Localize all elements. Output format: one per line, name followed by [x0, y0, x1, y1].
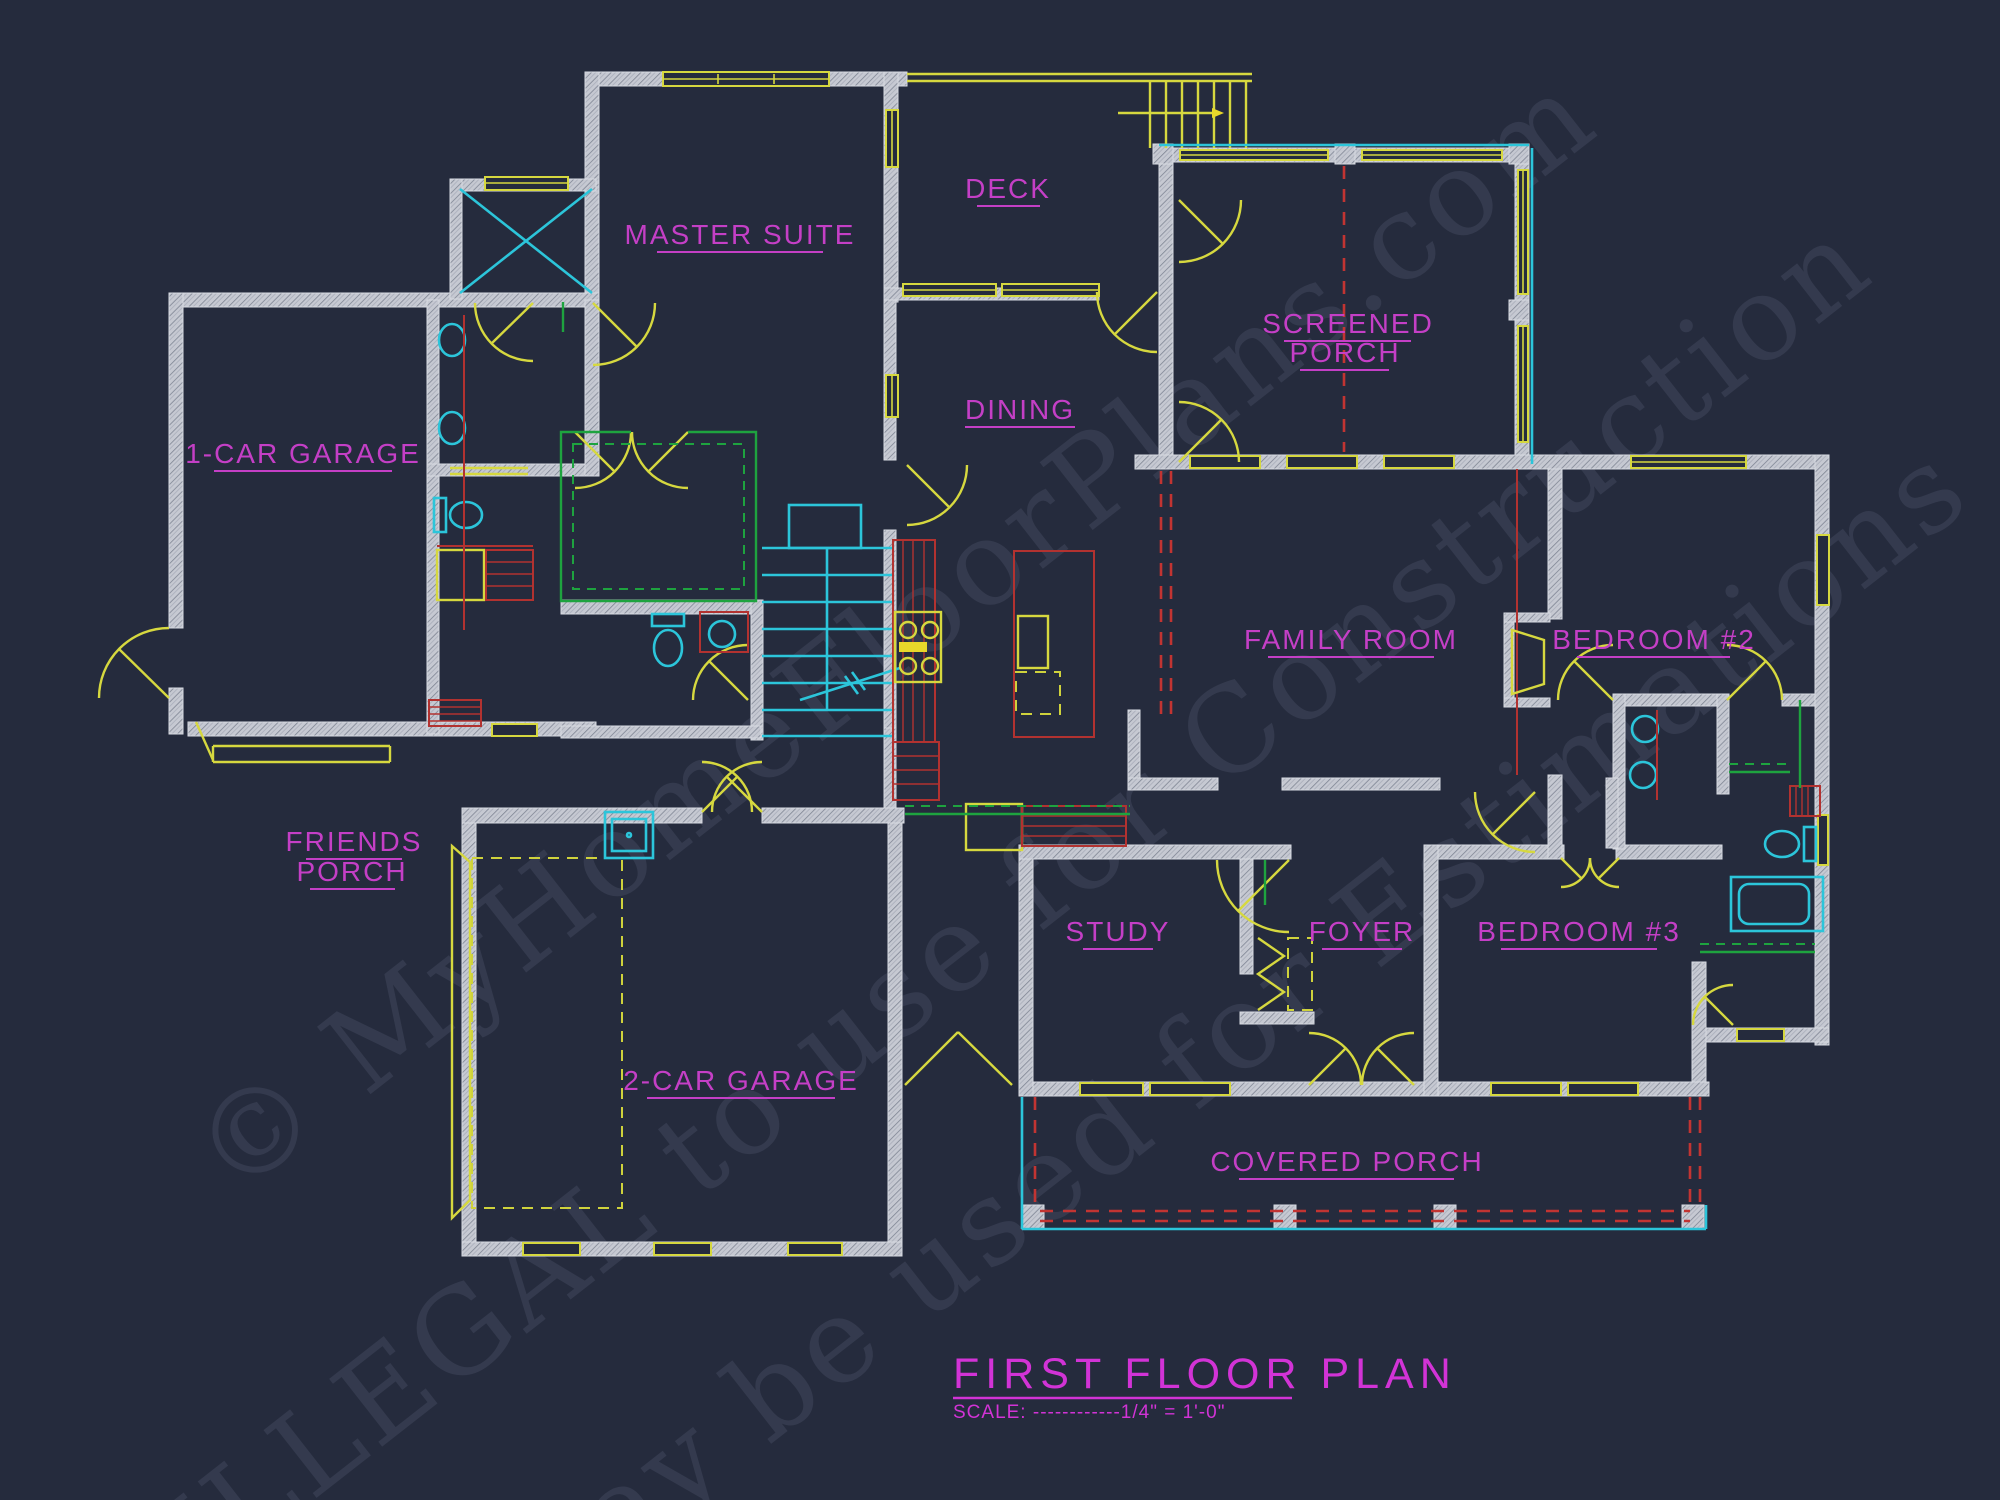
room-label-2-car-garage: 2-CAR GARAGE: [623, 1065, 859, 1096]
room-label-friends-porch-2: PORCH: [296, 856, 407, 887]
room-label-screened-porch-1: SCREENED: [1262, 308, 1434, 339]
room-label-family-room: FAMILY ROOM: [1244, 624, 1458, 655]
master-bath-sink-1: [439, 324, 465, 356]
room-label-bedroom-2: BEDROOM #2: [1552, 624, 1756, 655]
room-label-study: STUDY: [1066, 916, 1171, 947]
watermark: © MyHomeFloorPlans.com ILLEGAL to use fo…: [137, 44, 1993, 1500]
drawing-title: FIRST FLOOR PLAN: [953, 1350, 1457, 1398]
room-label-1-car-garage: 1-CAR GARAGE: [185, 438, 421, 469]
powder-toilet: [652, 614, 684, 666]
room-label-dining: DINING: [965, 394, 1075, 425]
master-wc-toilet: [434, 498, 482, 532]
deck-railing-and-stairs: [907, 74, 1252, 148]
powder-sink: [709, 621, 735, 647]
title-block: FIRST FLOOR PLAN SCALE: ------------1/4"…: [953, 1350, 1457, 1423]
room-label-foyer: FOYER: [1309, 916, 1415, 947]
shower-closet-x: [460, 189, 592, 293]
kitchen-base-cabinet: [893, 742, 939, 800]
drawing-scale: SCALE: ------------1/4" = 1'-0": [953, 1402, 1225, 1423]
laundry-washer-dryer: [437, 546, 533, 600]
room-label-friends-porch-1: FRIENDS: [286, 826, 423, 857]
room-label-bedroom-3: BEDROOM #3: [1477, 916, 1681, 947]
bathtub: [1731, 877, 1823, 931]
watermark-line-3: May be used for Estimations: [452, 415, 1993, 1500]
floor-plan-sheet: © MyHomeFloorPlans.com ILLEGAL to use fo…: [0, 0, 2000, 1500]
room-label-deck: DECK: [965, 173, 1051, 204]
room-label-covered-porch: COVERED PORCH: [1210, 1146, 1483, 1177]
stair-direction-arrow: [1212, 108, 1224, 118]
room-label-master-suite: MASTER SUITE: [625, 219, 856, 250]
room-label-screened-porch-2: PORCH: [1289, 337, 1400, 368]
floor-plan-canvas: © MyHomeFloorPlans.com ILLEGAL to use fo…: [0, 0, 2000, 1500]
hall-bath-toilet: [1765, 827, 1816, 861]
master-bath-sink-2: [439, 412, 465, 444]
